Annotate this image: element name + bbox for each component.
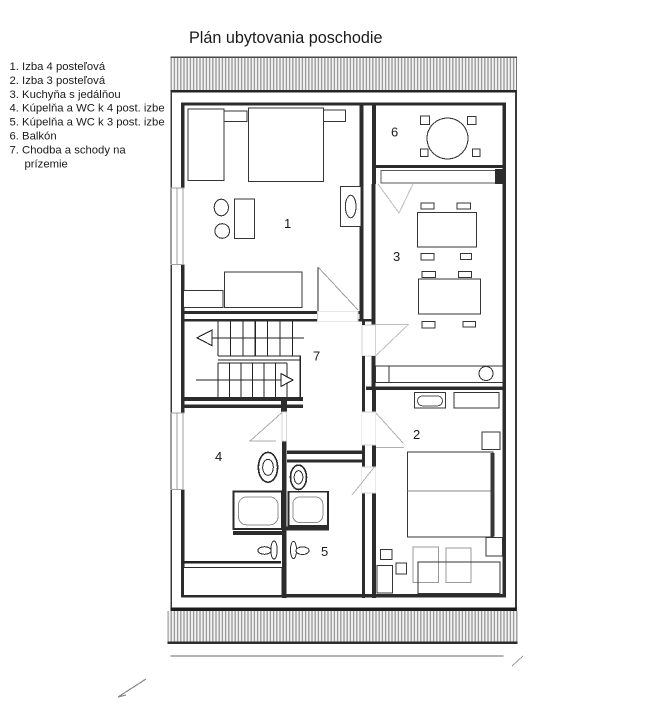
svg-text:prízemie: prízemie bbox=[25, 158, 68, 170]
svg-text:6: 6 bbox=[391, 125, 398, 140]
svg-text:5. Kúpelňa a WC k 3 post. izbe: 5. Kúpelňa a WC k 3 post. izbe bbox=[10, 117, 165, 129]
svg-text:6. Balkón: 6. Balkón bbox=[10, 131, 57, 143]
svg-text:4: 4 bbox=[215, 449, 222, 464]
svg-text:7: 7 bbox=[313, 349, 320, 364]
svg-text:Plán ubytovania poschodie: Plán ubytovania poschodie bbox=[189, 29, 383, 47]
svg-text:7. Chodba a schody na: 7. Chodba a schody na bbox=[10, 144, 127, 156]
svg-text:4. Kúpelňa a WC k 4 post. izbe: 4. Kúpelňa a WC k 4 post. izbe bbox=[10, 103, 165, 115]
svg-text:2: 2 bbox=[413, 427, 420, 442]
svg-text:1. Izba 4 posteľová: 1. Izba 4 posteľová bbox=[10, 61, 106, 73]
svg-text:2. Izba 3 posteľová: 2. Izba 3 posteľová bbox=[10, 75, 106, 87]
svg-text:3: 3 bbox=[393, 249, 400, 264]
svg-text:1: 1 bbox=[284, 216, 291, 231]
svg-text:3. Kuchyňa s jedálňou: 3. Kuchyňa s jedálňou bbox=[10, 89, 121, 101]
svg-text:5: 5 bbox=[321, 544, 328, 559]
